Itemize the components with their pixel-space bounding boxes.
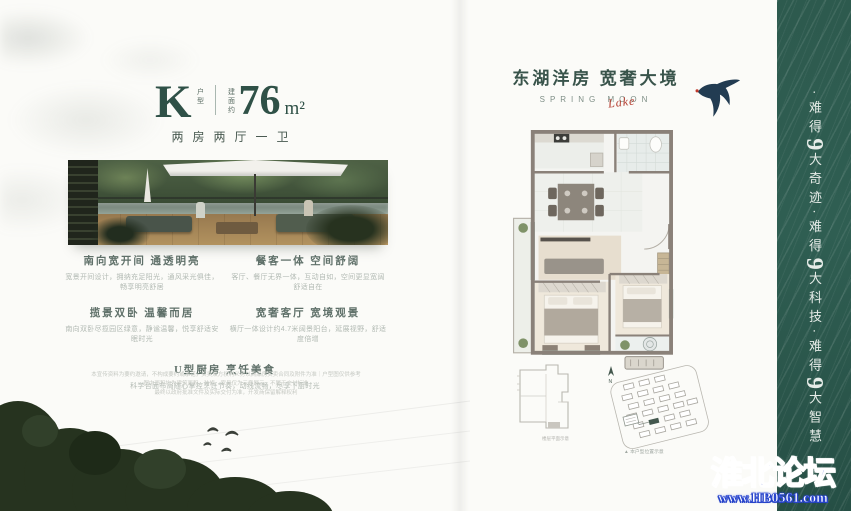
banner-text-segment: · xyxy=(807,209,822,219)
banner-number: 9 xyxy=(801,138,827,152)
photo-person xyxy=(196,202,205,218)
unit-area-unit: m² xyxy=(285,98,305,120)
banner-text-segment: 难得 xyxy=(807,220,822,258)
unit-type-letter: K xyxy=(155,80,192,125)
banner-slogan: ·难得9大奇迹·难得9大科技·难得9大智慧 xyxy=(802,90,826,448)
banner-number: 9 xyxy=(801,258,827,272)
feature-title: 宽奢客厅 宽境观景 xyxy=(228,305,388,320)
feature-item: 宽奢客厅 宽境观景横厅一体设计约4.7米阔景阳台，延展视野，舒适度倍增 xyxy=(228,305,388,344)
project-header: 东湖洋房 宽奢大境 SPRING MOON Lake xyxy=(500,64,692,104)
unit-area-number: 76 xyxy=(239,80,281,122)
feature-item: 餐客一体 空间舒阔客厅、餐厅无界一体，互动自如，空间更显宽阔舒适自在 xyxy=(228,253,388,292)
trees-decoration xyxy=(0,391,480,511)
terrace-photo xyxy=(68,160,388,245)
site-plan-note: ▲ 本户型位置示意 xyxy=(624,448,664,455)
photo-plant xyxy=(306,205,388,245)
banner-text-segment: 大奇迹 xyxy=(807,152,822,209)
photo-person xyxy=(304,200,313,216)
banner-text-segment: 大智慧 xyxy=(807,391,822,448)
feature-desc: 横厅一体设计约4.7米阔景阳台，延展视野，舒适度倍增 xyxy=(228,324,388,344)
feature-desc: 宽景开间设计，拥纳充足阳光，通风采光俱佳，畅享明亮舒居 xyxy=(62,272,222,292)
mini-plan-note: 楼层平面示意 xyxy=(542,435,569,442)
side-banner: ·难得9大奇迹·难得9大科技·难得9大智慧 xyxy=(777,0,851,511)
swallow-icon xyxy=(694,76,742,121)
svg-text:N: N xyxy=(609,379,613,385)
photo-coffee-table xyxy=(216,222,258,234)
photo-plant xyxy=(90,217,150,245)
feature-item: 揽景双卧 温馨而居南向双卧尽揽园区绿意，静谧温馨，悦享舒适安眠时光 xyxy=(62,305,222,344)
banner-text-segment: · xyxy=(807,329,822,339)
photo-railing xyxy=(96,197,388,199)
disclaimer-line: 最终以政府批准文件及实际交付为准，开发商保留解释权利 xyxy=(66,389,386,398)
site-plan: N ▲ 本户型位置示意 xyxy=(598,362,712,456)
banner-text-segment: · xyxy=(807,90,822,100)
banner-text-segment: 难得 xyxy=(807,339,822,377)
unit-type-label: 户型 xyxy=(195,88,205,106)
header-divider xyxy=(215,85,216,115)
banner-text-segment: 难得 xyxy=(807,100,822,138)
watermark-url: www.HB0561.com xyxy=(697,491,849,507)
project-title: 东湖洋房 宽奢大境 xyxy=(500,64,692,89)
unit-rooms-label: 两房两厅一卫 xyxy=(115,128,345,145)
feature-title: 揽景双卧 温馨而居 xyxy=(62,305,222,320)
feature-desc: 客厅、餐厅无界一体，互动自如，空间更显宽阔舒适自在 xyxy=(228,272,388,292)
feature-title: 餐客一体 空间舒阔 xyxy=(228,253,388,268)
highlighted-building xyxy=(648,418,659,425)
unit-header: K 户型 建面约 76 m² xyxy=(115,80,345,125)
project-script-signature: Lake xyxy=(607,93,636,111)
floorplan-drawing xyxy=(506,130,694,372)
brochure-spread: K 户型 建面约 76 m² 两房两厅一卫 南向宽开间 通透明亮宽景 xyxy=(0,0,851,511)
compass-icon: N xyxy=(608,366,614,385)
unit-area-prefix: 建面约 xyxy=(226,88,236,115)
watermark-title: 淮北论坛 xyxy=(697,457,849,489)
page-fold-gutter xyxy=(451,0,469,511)
birds-icon xyxy=(204,428,238,451)
project-subtitle: SPRING MOON xyxy=(500,95,692,104)
photo-umbrella-pole xyxy=(254,174,256,216)
mini-floorplan: 楼层平面示意 xyxy=(512,362,578,446)
feature-item: 南向宽开间 通透明亮宽景开间设计，拥纳充足阳光，通风采光俱佳，畅享明亮舒居 xyxy=(62,253,222,292)
disclaimer-line: 本宣传资料为要约邀请，不构成要约或承诺，买卖双方权利义务以商品房买卖合同及附件为… xyxy=(66,371,386,380)
feature-title: 南向宽开间 通透明亮 xyxy=(62,253,222,268)
watermark: 淮北论坛 www.HB0561.com xyxy=(697,457,849,507)
banner-text-segment: 大科技 xyxy=(807,272,822,329)
disclaimer-text: 本宣传资料为要约邀请，不构成要约或承诺，买卖双方权利义务以商品房买卖合同及附件为… xyxy=(66,371,386,397)
disclaimer-line: 图中面积均为建筑面积，装修、家具仅为示意展示，不属于交付标准 xyxy=(66,380,386,389)
feature-desc: 南向双卧尽揽园区绿意，静谧温馨，悦享舒适安眠时光 xyxy=(62,324,222,344)
banner-number: 9 xyxy=(801,377,827,391)
